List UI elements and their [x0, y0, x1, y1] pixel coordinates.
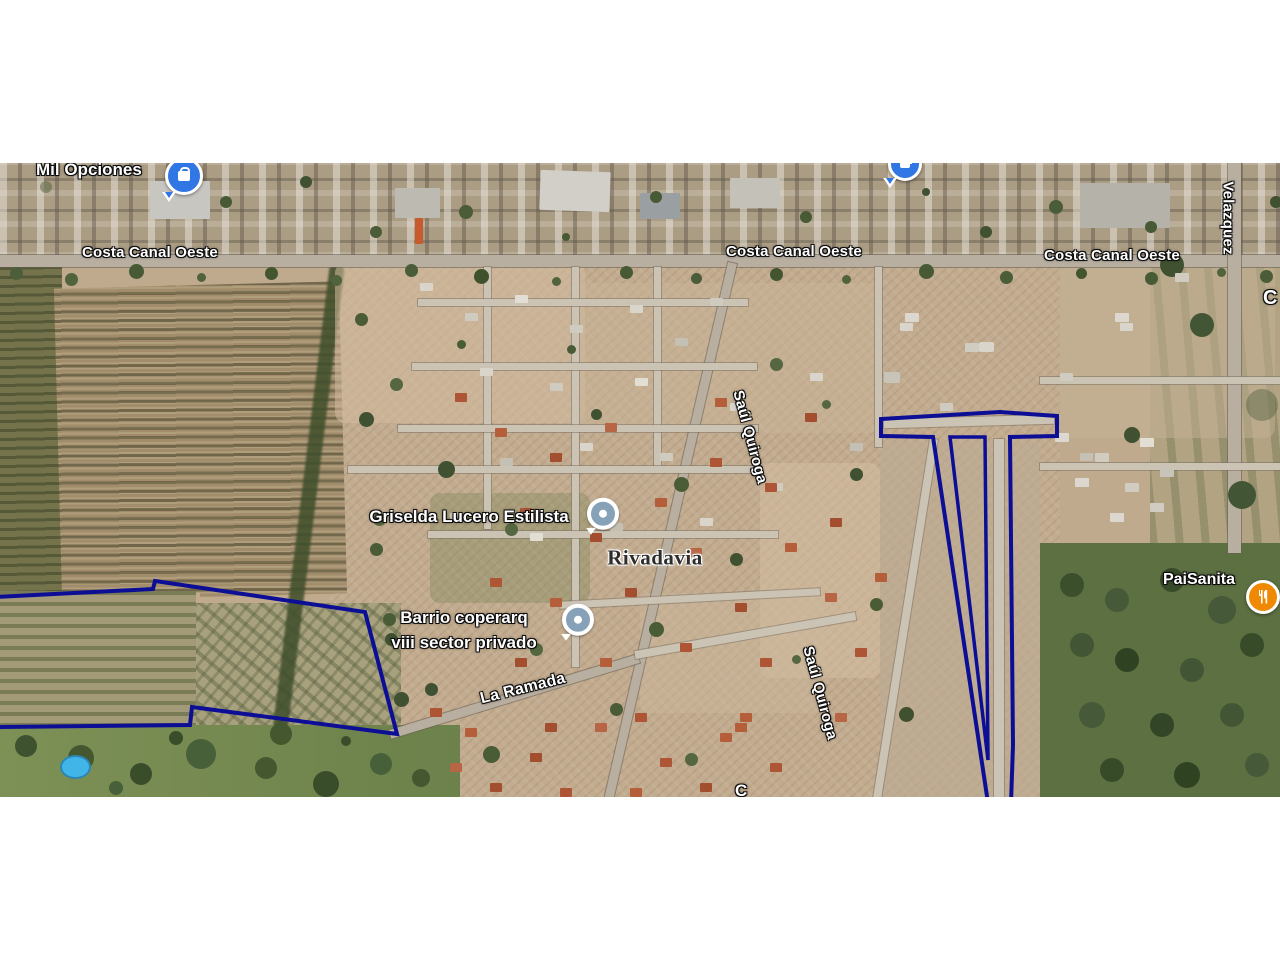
building-roof: [395, 188, 440, 218]
building-roof: [640, 193, 680, 219]
building-roofs: [420, 283, 433, 291]
fork-knife-glyph: [1255, 589, 1271, 605]
road: [1040, 377, 1280, 384]
shopping-bag-icon: [178, 171, 190, 181]
road: [412, 363, 757, 370]
building-roof: [539, 170, 610, 212]
poi-label-mil-opciones[interactable]: Mil Opciones: [36, 163, 142, 180]
street-label-partial: C: [735, 781, 747, 797]
trees: [1060, 573, 1084, 597]
poi-label-barrio-coperarq[interactable]: Barrio coperarq viii sector privado: [391, 605, 537, 655]
poi-label-line2: viii sector privado: [391, 630, 537, 655]
road: [1040, 463, 1280, 470]
road: [428, 531, 778, 538]
street-label-costa-canal-oeste: Costa Canal Oeste: [1044, 247, 1180, 264]
street-label-costa-canal-oeste: Costa Canal Oeste: [726, 243, 862, 260]
satellite-vineyard-left: [0, 258, 62, 598]
poi-pin-unlabeled[interactable]: [883, 163, 927, 181]
road: [484, 267, 491, 529]
locality-label-rivadavia[interactable]: Rivadavia: [607, 546, 703, 571]
road: [418, 299, 748, 306]
container: [415, 218, 423, 244]
road: [875, 267, 882, 447]
place-dot-icon: [562, 604, 594, 636]
poi-label-line1: Barrio coperarq: [391, 605, 537, 630]
poi-pin-mil-opciones[interactable]: [162, 163, 206, 195]
street-label-partial: C: [1263, 287, 1278, 310]
trees: [355, 313, 368, 326]
road: [398, 425, 758, 432]
building-roof: [730, 178, 780, 208]
trees: [40, 181, 52, 193]
satellite-fallow-field: [0, 591, 196, 731]
building-roof: [1080, 183, 1170, 228]
place-dot-icon: [587, 498, 619, 530]
poi-label-griselda-lucero-estilista[interactable]: Griselda Lucero Estilista: [369, 507, 568, 527]
terrain-patch: [1060, 263, 1275, 438]
road: [994, 439, 1004, 797]
building-roofs: [430, 708, 442, 717]
shopping-pin-icon: [165, 163, 203, 195]
satellite-map-canvas[interactable]: Costa Canal Oeste Costa Canal Oeste Cost…: [0, 163, 1280, 797]
poi-label-paisanita[interactable]: PaiSanita: [1163, 571, 1235, 589]
restaurant-icon: [1246, 580, 1280, 614]
swimming-pool: [60, 755, 91, 779]
screenshot-root: { "streets": { "costa_canal_oeste": "Cos…: [0, 0, 1280, 960]
street-label-velazquez: Velazquez: [1220, 181, 1237, 255]
tree-row: [10, 267, 23, 280]
pin-glyph: [900, 163, 910, 168]
building-roofs: [1055, 433, 1069, 442]
street-label-costa-canal-oeste: Costa Canal Oeste: [82, 244, 218, 261]
poi-dot-barrio[interactable]: [561, 604, 595, 636]
road: [348, 466, 760, 473]
building-roofs: [455, 393, 467, 402]
poi-dot-griselda[interactable]: [586, 498, 620, 530]
trees: [15, 735, 37, 757]
